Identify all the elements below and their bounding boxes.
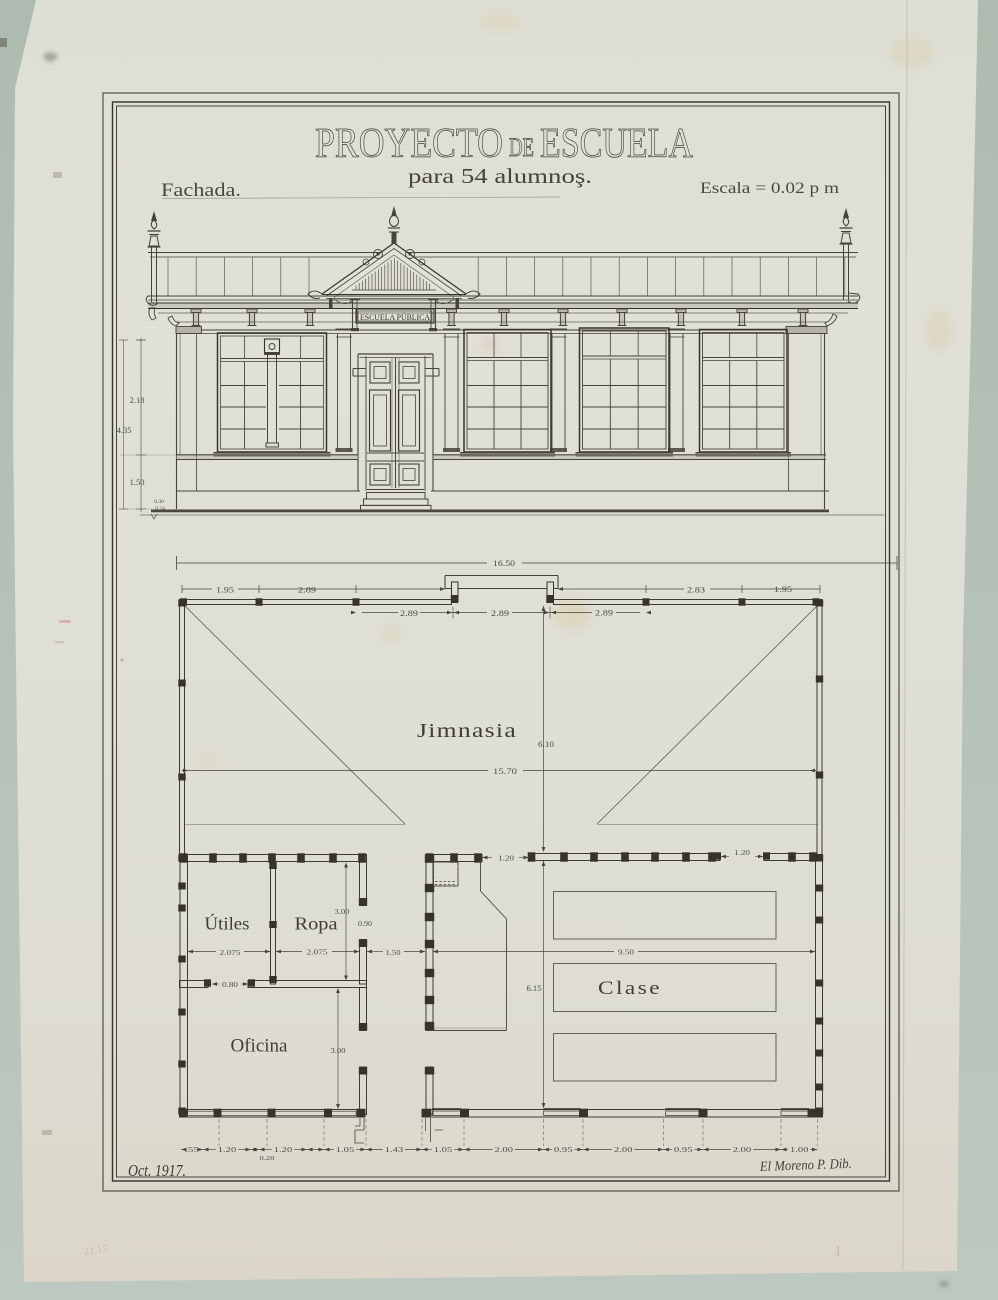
svg-text:Jimnasia: Jimnasia — [417, 720, 517, 742]
svg-text:ESCUELA PÚBLICA: ESCUELA PÚBLICA — [360, 312, 430, 322]
svg-text:1.00: 1.00 — [790, 1146, 809, 1154]
svg-text:0.80: 0.80 — [222, 981, 239, 989]
svg-text:2.00: 2.00 — [733, 1146, 752, 1154]
svg-text:para 54 alumnoş.: para 54 alumnoş. — [408, 164, 592, 188]
svg-text:0.24: 0.24 — [155, 506, 165, 512]
svg-text:2.18: 2.18 — [130, 395, 145, 405]
svg-text:1.20: 1.20 — [218, 1146, 237, 1154]
svg-text:1.95: 1.95 — [774, 585, 792, 594]
svg-text:Útiles: Útiles — [205, 913, 250, 934]
svg-text:1: 1 — [834, 1243, 842, 1260]
svg-text:2.89: 2.89 — [400, 609, 418, 618]
svg-text:Oct. 1917.: Oct. 1917. — [128, 1161, 186, 1180]
svg-text:2.83: 2.83 — [687, 586, 705, 595]
svg-text:16.50: 16.50 — [493, 558, 515, 568]
svg-text:ESCUELA: ESCUELA — [540, 121, 694, 167]
svg-text:Escala = 0.02 p m: Escala = 0.02 p m — [700, 180, 840, 197]
svg-text:2.00: 2.00 — [495, 1146, 514, 1154]
svg-text:2.00: 2.00 — [614, 1146, 633, 1154]
svg-text:2.075: 2.075 — [220, 948, 241, 957]
svg-text:0.95: 0.95 — [554, 1146, 573, 1154]
svg-text:2.89: 2.89 — [595, 609, 613, 618]
svg-text:1.05: 1.05 — [434, 1146, 453, 1154]
svg-text:Clase: Clase — [598, 978, 662, 999]
svg-text:0.30: 0.30 — [154, 499, 164, 505]
svg-text:15.70: 15.70 — [493, 766, 517, 776]
svg-text:1.50: 1.50 — [130, 477, 145, 487]
svg-text:Oficina: Oficina — [231, 1036, 289, 1057]
svg-text:6.10: 6.10 — [538, 739, 554, 749]
svg-text:1.20: 1.20 — [274, 1146, 293, 1154]
svg-text:DE: DE — [509, 133, 534, 162]
svg-text:1.20: 1.20 — [498, 854, 514, 863]
svg-text:PROYECTO: PROYECTO — [315, 121, 503, 167]
svg-text:1.95: 1.95 — [216, 586, 234, 595]
svg-text:3.00: 3.00 — [331, 1046, 346, 1055]
svg-text:9.50: 9.50 — [618, 948, 634, 957]
svg-text:2.89: 2.89 — [491, 609, 509, 618]
svg-text:1.43: 1.43 — [385, 1146, 404, 1154]
svg-text:0.90: 0.90 — [358, 920, 373, 928]
svg-text:Fachada.: Fachada. — [161, 180, 241, 201]
svg-text:1.05: 1.05 — [336, 1146, 355, 1154]
svg-text:2.075: 2.075 — [307, 948, 328, 957]
svg-text:4.35: 4.35 — [117, 425, 132, 435]
svg-text:0.20: 0.20 — [260, 1156, 275, 1162]
svg-text:6.15: 6.15 — [527, 984, 542, 993]
svg-text:0.95: 0.95 — [674, 1146, 693, 1154]
svg-text:1.20: 1.20 — [734, 848, 750, 857]
svg-text:1.50: 1.50 — [386, 948, 401, 957]
svg-text:Ropa: Ropa — [295, 914, 338, 934]
svg-text:2.89: 2.89 — [298, 586, 316, 595]
